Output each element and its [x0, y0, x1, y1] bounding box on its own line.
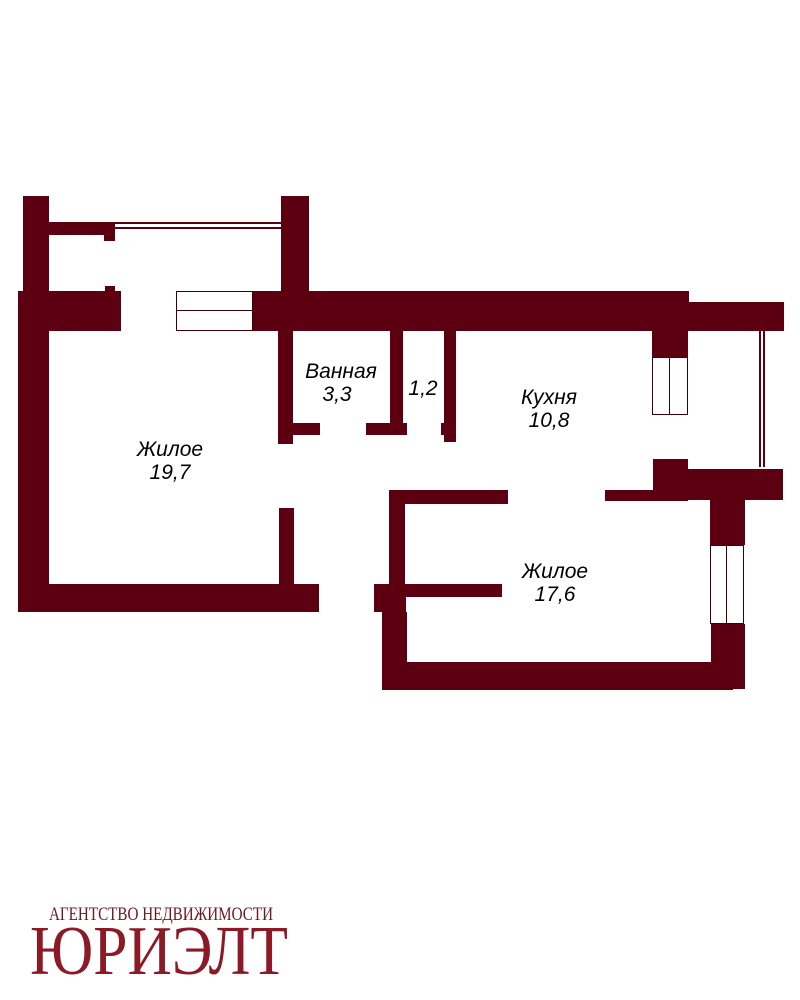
svg-text:ЮРИЭЛТ: ЮРИЭЛТ [30, 913, 288, 990]
